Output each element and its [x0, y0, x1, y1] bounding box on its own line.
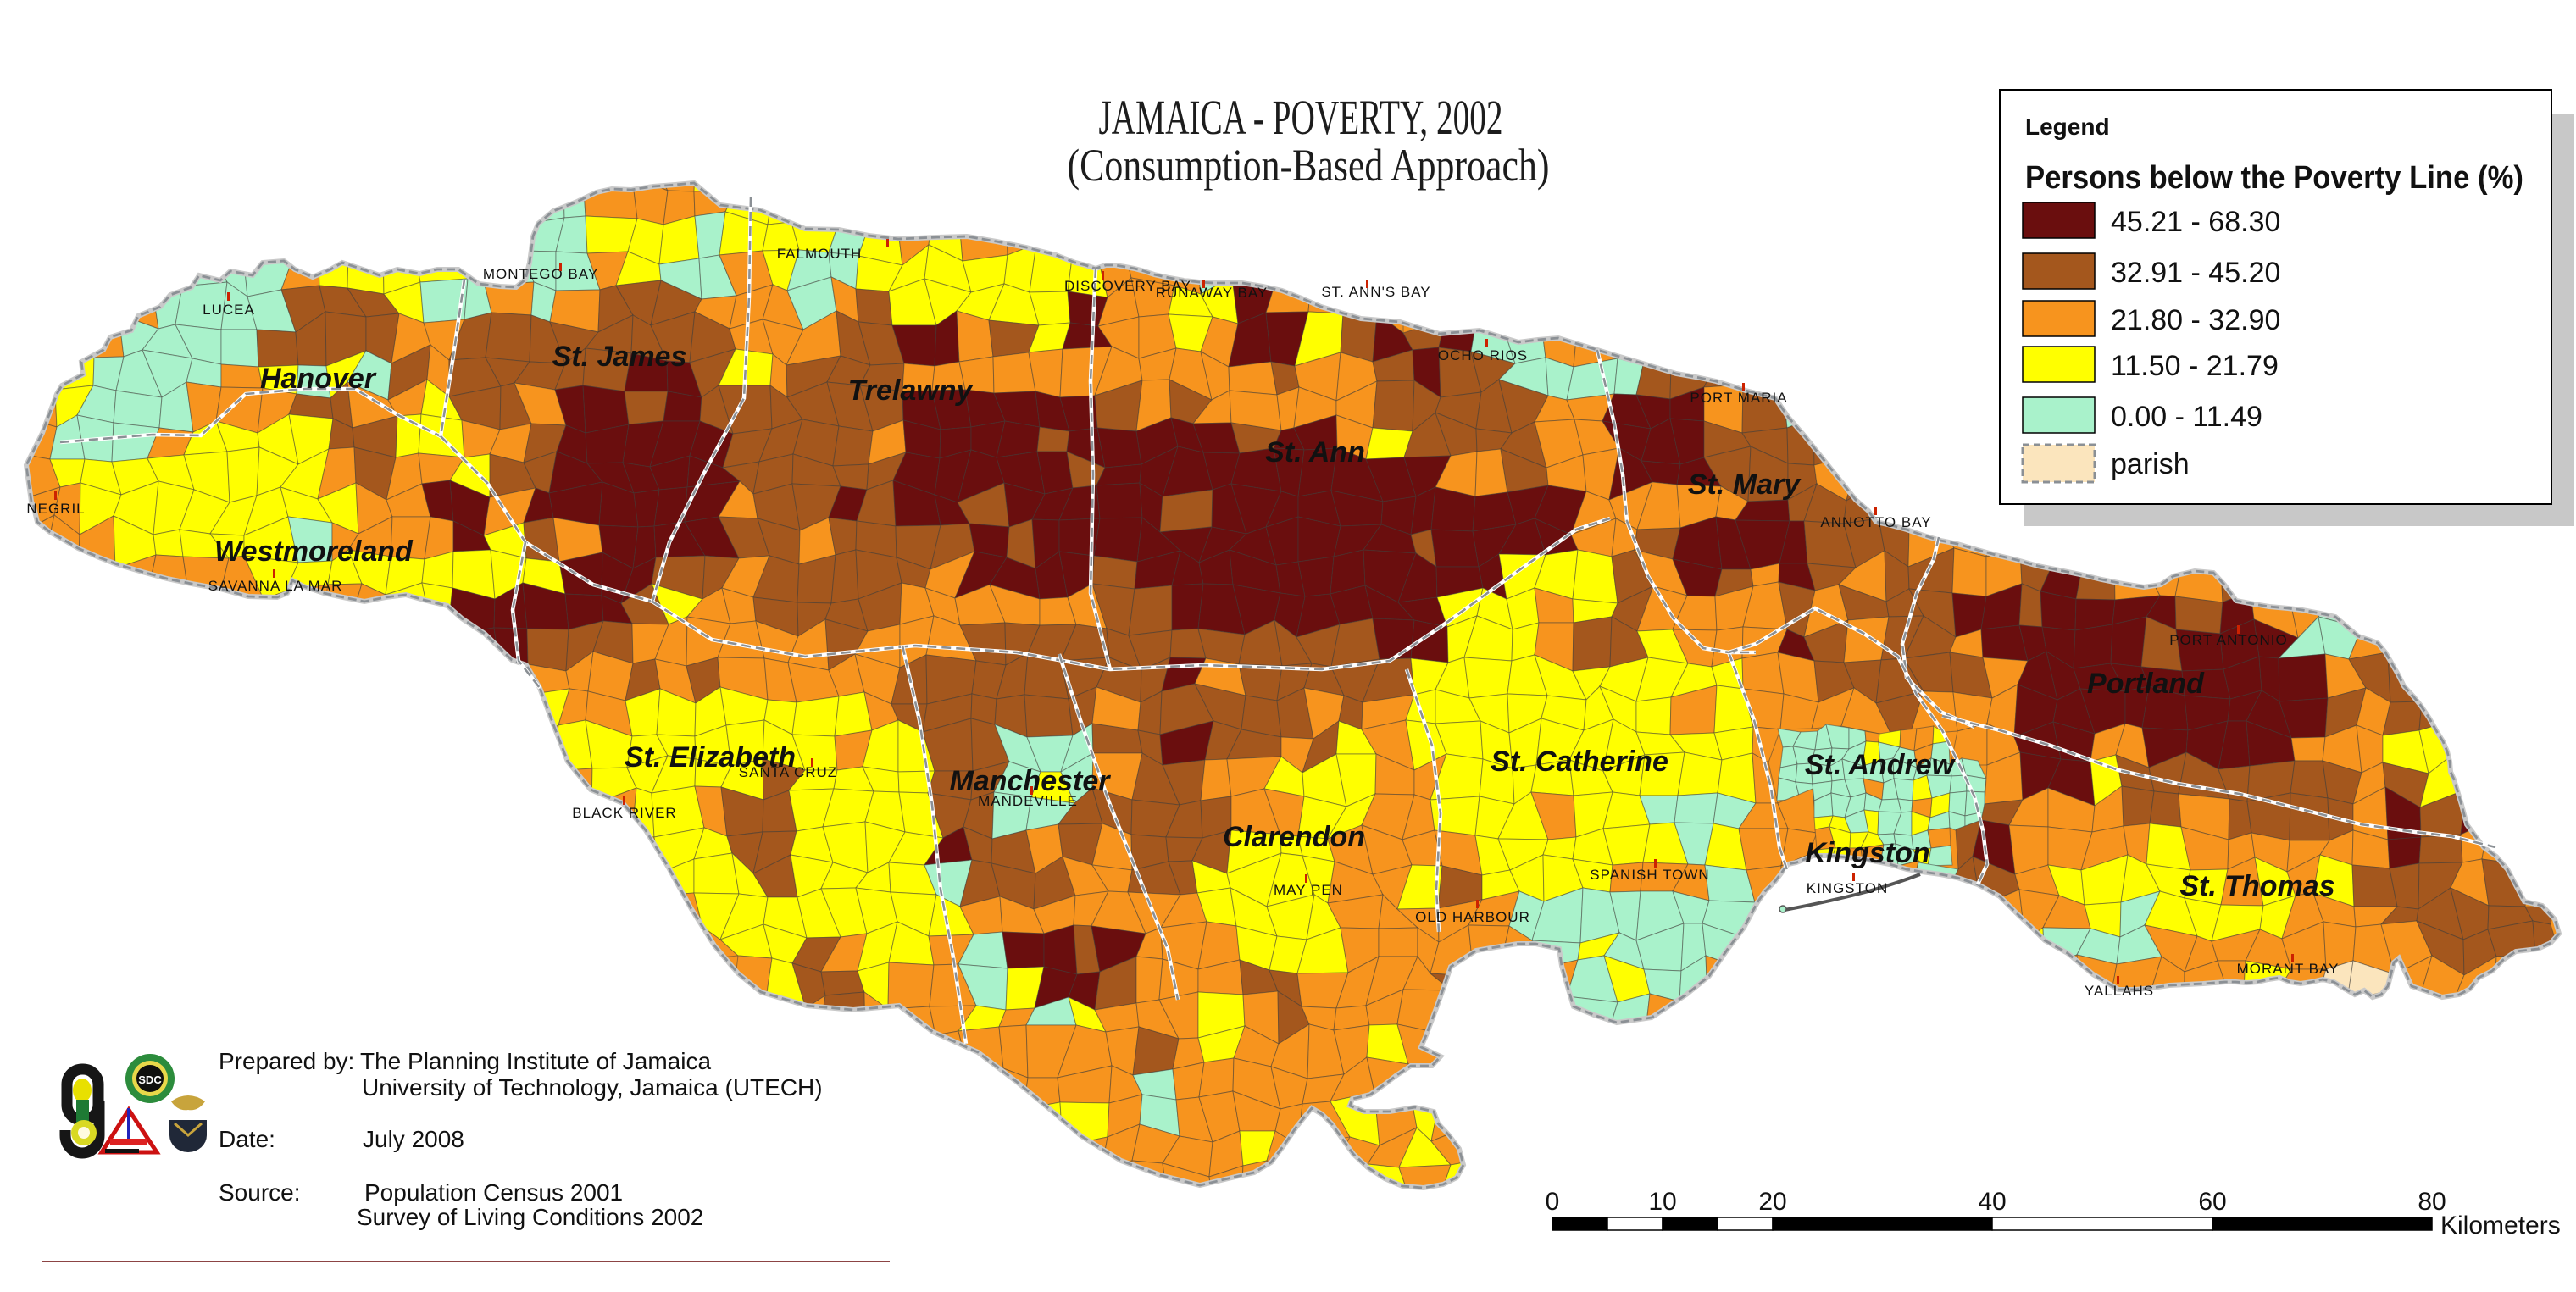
svg-text:ST. ANN'S BAY: ST. ANN'S BAY: [1321, 284, 1430, 300]
svg-text:July 2008: July 2008: [363, 1126, 464, 1152]
svg-text:PORT MARIA: PORT MARIA: [1690, 390, 1787, 406]
svg-text:SDC: SDC: [138, 1073, 162, 1086]
svg-text:The Planning Institute of Jama: The Planning Institute of Jamaica: [360, 1048, 711, 1074]
svg-text:0.00 - 11.49: 0.00 - 11.49: [2111, 401, 2262, 433]
svg-text:Trelawny: Trelawny: [848, 374, 974, 407]
svg-text:St. Thomas: St. Thomas: [2179, 870, 2334, 902]
svg-text:21.80 - 32.90: 21.80 - 32.90: [2111, 304, 2280, 336]
svg-text:ANNOTTO BAY: ANNOTTO BAY: [1820, 514, 1931, 530]
svg-text:OLD HARBOUR: OLD HARBOUR: [1415, 909, 1530, 925]
svg-text:(Consumption-Based Approach): (Consumption-Based Approach): [1068, 140, 1550, 191]
svg-text:MONTEGO BAY: MONTEGO BAY: [483, 266, 598, 282]
svg-text:FALMOUTH: FALMOUTH: [777, 246, 863, 262]
svg-text:Hanover: Hanover: [260, 363, 377, 395]
svg-text:University of Technology, Jama: University of Technology, Jamaica (UTECH…: [362, 1074, 823, 1101]
svg-text:YALLAHS: YALLAHS: [2085, 983, 2154, 999]
svg-text:Kingston: Kingston: [1805, 837, 1929, 869]
svg-text:Kilometers: Kilometers: [2440, 1212, 2561, 1239]
svg-text:Westmoreland: Westmoreland: [214, 535, 414, 568]
svg-text:parish: parish: [2111, 448, 2190, 480]
svg-text:LUCEA: LUCEA: [203, 302, 255, 318]
svg-text:40: 40: [1978, 1188, 2006, 1216]
svg-text:11.50 - 21.79: 11.50 - 21.79: [2111, 350, 2279, 382]
svg-text:St. Ann: St. Ann: [1265, 436, 1365, 469]
svg-text:MORANT BAY: MORANT BAY: [2237, 961, 2340, 977]
svg-text:SANTA CRUZ: SANTA CRUZ: [739, 764, 837, 780]
svg-text:PORT ANTONIO: PORT ANTONIO: [2169, 632, 2288, 648]
svg-text:Survey of Living Conditions 20: Survey of Living Conditions 2002: [357, 1204, 703, 1230]
svg-text:KINGSTON: KINGSTON: [1807, 880, 1888, 896]
svg-text:Prepared by:: Prepared by:: [219, 1048, 354, 1074]
svg-text:Population Census 2001: Population Census 2001: [364, 1179, 623, 1206]
svg-text:SAVANNA LA MAR: SAVANNA LA MAR: [208, 578, 343, 594]
svg-text:JAMAICA - POVERTY, 2002: JAMAICA - POVERTY, 2002: [1099, 90, 1503, 145]
svg-text:60: 60: [2198, 1188, 2226, 1216]
svg-text:0: 0: [1546, 1188, 1560, 1216]
svg-text:32.91 - 45.20: 32.91 - 45.20: [2111, 257, 2280, 289]
svg-text:RUNAWAY BAY: RUNAWAY BAY: [1156, 285, 1269, 301]
svg-text:Source:: Source:: [219, 1179, 301, 1206]
svg-text:OCHO RIOS: OCHO RIOS: [1438, 347, 1528, 363]
svg-text:Date:: Date:: [219, 1126, 275, 1152]
svg-text:NEGRIL: NEGRIL: [26, 501, 85, 517]
svg-text:10: 10: [1648, 1188, 1676, 1216]
svg-text:Legend: Legend: [2025, 114, 2110, 140]
svg-text:Clarendon: Clarendon: [1223, 821, 1365, 853]
svg-text:St. James: St. James: [552, 341, 687, 373]
svg-text:BLACK RIVER: BLACK RIVER: [572, 805, 676, 821]
svg-text:MANDEVILLE: MANDEVILLE: [978, 793, 1078, 809]
svg-text:45.21 - 68.30: 45.21 - 68.30: [2111, 206, 2280, 238]
svg-text:SPANISH TOWN: SPANISH TOWN: [1590, 867, 1709, 883]
svg-text:Portland: Portland: [2087, 668, 2205, 700]
svg-text:Persons below the Poverty Line: Persons below the Poverty Line (%): [2025, 160, 2523, 196]
svg-text:St. Andrew: St. Andrew: [1805, 749, 1957, 781]
svg-text:20: 20: [1758, 1188, 1786, 1216]
svg-text:St. Catherine: St. Catherine: [1491, 746, 1668, 778]
svg-text:MAY PEN: MAY PEN: [1274, 882, 1343, 898]
svg-text:St. Mary: St. Mary: [1688, 469, 1802, 501]
